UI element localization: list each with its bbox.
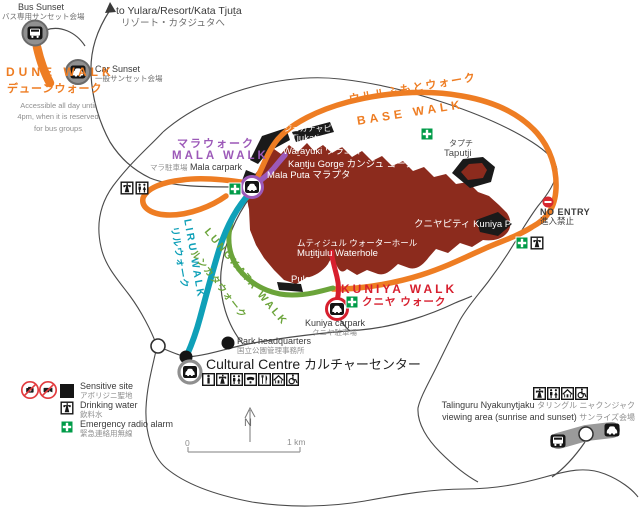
talinguru-label-ja: タリングル ニャクンジャク (537, 401, 635, 410)
drinking-water-icon (217, 374, 229, 386)
first-aid-icon (421, 128, 433, 140)
viewing-area-label: viewing area (sunrise and sunset) サンライズ会… (442, 412, 635, 422)
bus-sunset-marker (23, 21, 48, 46)
uluru-walks-map: Bus Sunset バス専用サンセット会場 to Yulara/Resort/… (0, 0, 640, 523)
drinking-water-icon (61, 402, 73, 414)
legend-drinking-water: Drinking water (80, 400, 138, 410)
shelter-icon (273, 374, 285, 386)
legend-sensitive-site: Sensitive site (80, 381, 133, 391)
cultural-centre-facilities (203, 374, 299, 386)
wheelchair-access-icon (576, 388, 588, 400)
warayuki-label: Waṟayuki ワラユキ (283, 147, 363, 158)
wheelchair-access-icon (287, 374, 299, 386)
toilets-icon (136, 182, 148, 194)
to-yulara-label-ja: リゾート・カタジュタへ (121, 19, 225, 30)
pulari-label: Pulari (291, 275, 315, 286)
tjukatjapi-label-ja: ジュカチャピ (284, 124, 331, 133)
park-headquarters-label-ja: 国立公園管理事務所 (237, 347, 305, 356)
dune-walk-label-ja: デューンウォーク (7, 83, 102, 96)
first-aid-icon (346, 296, 358, 308)
information-icon (203, 374, 215, 386)
kuniya-carpark-label: Kuniya carpark (305, 318, 365, 328)
mala-carpark-label-ja: マラ駐車場 (150, 163, 188, 172)
no-entry-icon (543, 197, 554, 208)
talinguru-facilities (534, 388, 588, 400)
kuniya-carpark-marker (327, 299, 348, 320)
scale-bar (188, 447, 300, 452)
cultural-centre-label: Cultural Centre カルチャーセンター (206, 356, 421, 373)
drinking-water-icon (534, 388, 546, 400)
toilets-icon (231, 374, 243, 386)
kuniya-walk-label-ja: クニヤ ウォーク (362, 296, 446, 308)
cultural-centre-carpark-marker (179, 361, 201, 383)
dune-walk-label: DUNE WALK (6, 66, 115, 80)
scale-zero-label: 0 (185, 439, 190, 449)
park-headquarters-label: Park headquarters (237, 336, 311, 346)
mala-facilities (121, 182, 148, 194)
arrow-to-yulara (105, 2, 116, 13)
mala-walk-label-ja: マラウォーク (177, 138, 255, 151)
food-icon (259, 374, 271, 386)
taputji-label-ja: タプチ (449, 139, 473, 148)
mutitjulu-label: Muṯitjulu Waterhole (297, 249, 378, 260)
bus-sunset-label: Bus Sunset (18, 2, 64, 12)
first-aid-icon (516, 237, 528, 249)
cultural-centre-label-ja: カルチャーセンター (304, 357, 421, 372)
no-video-icon (40, 382, 56, 398)
legend-icons (22, 382, 74, 433)
talinguru-viewing-loop (551, 424, 620, 448)
taputji-rock (452, 157, 495, 188)
no-photography-icon (22, 382, 38, 398)
no-entry-label-ja: 進入禁止 (540, 217, 574, 227)
legend-radio-alarm: Emergency radio alarm (80, 419, 173, 429)
kuniya-walk-label: KUNIYA WALK (341, 283, 457, 297)
telephone-icon (245, 374, 257, 386)
kuniya-carpark-label-ja: クニヤ駐車場 (312, 329, 357, 338)
dune-walk-note: Accessible all day until 4pm, when it is… (12, 100, 104, 134)
road-junction (151, 339, 165, 353)
road-bus-spur (46, 28, 85, 46)
mala-carpark-label: マラ駐車場 Mala carpark (150, 162, 242, 173)
tjukatjapi-label: Tjukatjapi (291, 134, 332, 145)
talinguru-label: Talinguru Nyakunytjaku タリングル ニャクンジャク (442, 400, 635, 410)
mala-carpark-marker (242, 177, 263, 198)
kuniya-piti-label: クニヤピティ Kuniya Piṯi (414, 220, 518, 231)
first-aid-icon (61, 421, 73, 433)
park-headquarters-node (222, 337, 235, 350)
scale-km-label: 1 km (287, 438, 305, 448)
bus-sunset-label-ja: バス専用サンセット会場 (2, 13, 85, 22)
viewing-area-label-ja: サンライズ会場 (579, 413, 635, 422)
taputji-label: Taputji (444, 149, 471, 160)
drinking-water-icon (531, 237, 543, 249)
drinking-water-icon (121, 182, 133, 194)
north-label: N (244, 417, 252, 430)
to-yulara-label: to Yulara/Resort/Kata Tjuṯa (116, 5, 242, 17)
toilets-icon (548, 388, 560, 400)
first-aid-icon (229, 183, 241, 195)
sensitive-site-icon (60, 384, 74, 398)
shelter-icon (562, 388, 574, 400)
legend-radio-alarm-ja: 緊急連絡用無線 (80, 430, 133, 439)
mala-puta-label: Mala Puta マラプタ (267, 171, 350, 182)
